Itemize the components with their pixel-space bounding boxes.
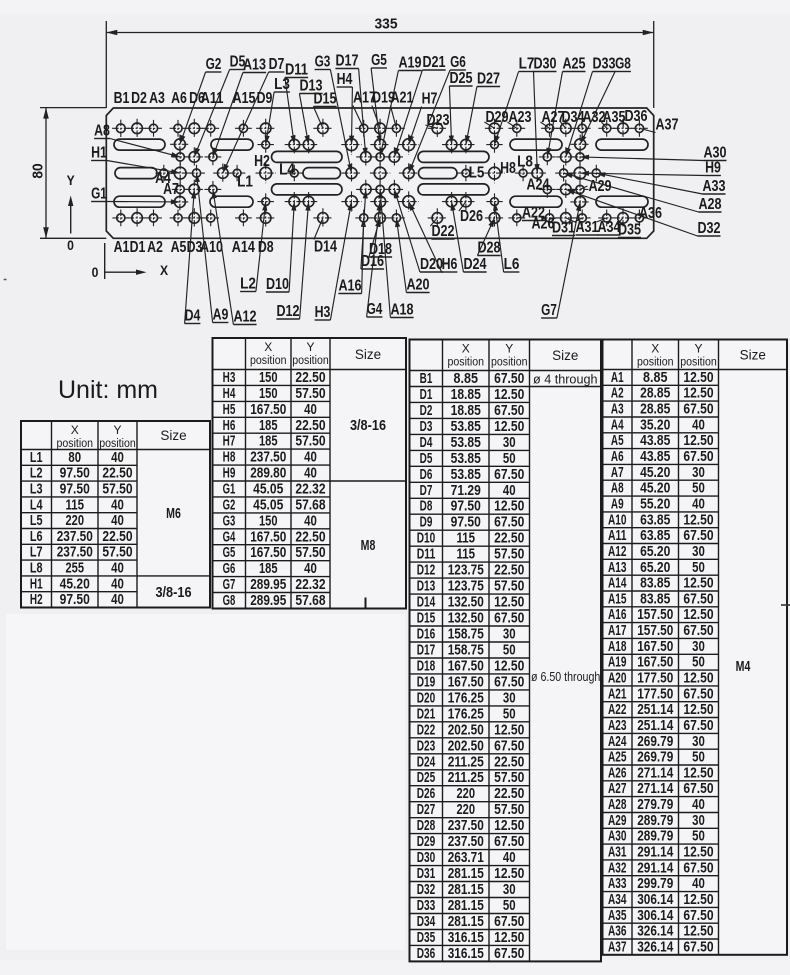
svg-text:D9: D9 <box>257 90 273 107</box>
svg-text:D33: D33 <box>417 898 436 914</box>
svg-text:50: 50 <box>503 706 516 722</box>
svg-text:220: 220 <box>66 513 85 529</box>
svg-text:Y: Y <box>694 342 702 356</box>
svg-text:40: 40 <box>503 850 516 866</box>
svg-text:A10: A10 <box>608 512 627 528</box>
svg-text:167.50: 167.50 <box>250 545 286 561</box>
svg-text:A33: A33 <box>608 876 627 892</box>
svg-text:12.50: 12.50 <box>683 576 713 592</box>
svg-text:40: 40 <box>111 513 124 529</box>
svg-text:A13: A13 <box>243 57 266 74</box>
svg-text:53.85: 53.85 <box>451 419 481 435</box>
svg-text:167.50: 167.50 <box>637 639 673 655</box>
svg-text:A9: A9 <box>611 497 624 513</box>
svg-text:83.85: 83.85 <box>640 576 670 592</box>
svg-text:L3: L3 <box>274 76 290 93</box>
svg-text:12.50: 12.50 <box>683 433 713 449</box>
svg-text:167.50: 167.50 <box>448 674 484 690</box>
svg-text:211.25: 211.25 <box>448 770 484 786</box>
svg-text:67.50: 67.50 <box>683 686 713 702</box>
svg-text:30: 30 <box>692 813 705 829</box>
svg-text:A34: A34 <box>597 219 620 236</box>
svg-text:63.85: 63.85 <box>640 528 670 544</box>
svg-text:A8: A8 <box>611 481 624 497</box>
svg-text:67.50: 67.50 <box>683 908 713 924</box>
svg-text:H1: H1 <box>30 576 43 592</box>
svg-text:12.50: 12.50 <box>683 924 713 940</box>
svg-text:D4: D4 <box>420 435 433 451</box>
svg-text:Y: Y <box>113 423 121 437</box>
svg-text:Size: Size <box>355 347 381 362</box>
svg-text:12.50: 12.50 <box>683 845 713 861</box>
svg-text:45.05: 45.05 <box>253 497 283 513</box>
svg-text:A34: A34 <box>608 892 627 908</box>
svg-text:50: 50 <box>503 898 516 914</box>
svg-text:115: 115 <box>457 547 476 563</box>
svg-text:A2: A2 <box>147 239 163 256</box>
svg-text:289.95: 289.95 <box>250 593 286 609</box>
svg-text:67.50: 67.50 <box>494 403 524 419</box>
svg-text:12.50: 12.50 <box>683 607 713 623</box>
svg-text:G8: G8 <box>223 593 236 609</box>
svg-text:50: 50 <box>692 481 705 497</box>
svg-text:30: 30 <box>692 465 705 481</box>
svg-text:158.75: 158.75 <box>448 643 484 659</box>
svg-text:L7: L7 <box>30 545 43 561</box>
svg-text:D31: D31 <box>417 866 436 882</box>
svg-text:G5: G5 <box>371 52 387 69</box>
svg-text:289.79: 289.79 <box>637 829 673 845</box>
svg-text:12.50: 12.50 <box>494 722 524 738</box>
svg-text:D23: D23 <box>417 738 436 754</box>
svg-text:123.75: 123.75 <box>448 563 484 579</box>
svg-text:X: X <box>264 340 272 354</box>
svg-text:position: position <box>250 355 287 367</box>
svg-text:0: 0 <box>67 238 74 253</box>
svg-text:12.50: 12.50 <box>683 370 713 386</box>
svg-text:D7: D7 <box>269 56 285 73</box>
svg-text:A8: A8 <box>94 123 110 140</box>
svg-text:A3: A3 <box>611 402 624 418</box>
svg-text:D36: D36 <box>417 946 436 962</box>
svg-text:position: position <box>292 355 329 367</box>
svg-text:D15: D15 <box>313 91 336 108</box>
svg-text:299.79: 299.79 <box>637 876 673 892</box>
svg-text:D2: D2 <box>420 403 433 419</box>
svg-text:12.50: 12.50 <box>494 866 524 882</box>
svg-text:150: 150 <box>259 370 278 386</box>
svg-text:237.50: 237.50 <box>57 529 93 545</box>
svg-text:D36: D36 <box>624 108 647 125</box>
svg-text:67.50: 67.50 <box>494 674 524 690</box>
svg-text:22.32: 22.32 <box>295 577 325 593</box>
svg-text:A25: A25 <box>562 56 585 73</box>
svg-text:53.85: 53.85 <box>451 467 481 483</box>
svg-text:316.15: 316.15 <box>448 930 484 946</box>
svg-text:L2: L2 <box>30 466 43 482</box>
svg-text:40: 40 <box>111 576 124 592</box>
svg-text:D32: D32 <box>417 882 436 898</box>
svg-text:30: 30 <box>503 882 516 898</box>
svg-text:67.50: 67.50 <box>494 467 524 483</box>
svg-text:50: 50 <box>692 829 705 845</box>
svg-text:D20: D20 <box>417 690 436 706</box>
svg-text:40: 40 <box>304 402 317 418</box>
svg-text:255: 255 <box>66 561 85 577</box>
svg-text:A13: A13 <box>608 560 627 576</box>
svg-text:G3: G3 <box>223 513 236 529</box>
svg-text:237.50: 237.50 <box>57 545 93 561</box>
svg-text:B1: B1 <box>114 90 130 107</box>
svg-text:X: X <box>462 342 470 356</box>
svg-text:H5: H5 <box>223 402 236 418</box>
svg-text:A5: A5 <box>171 239 187 256</box>
svg-text:289.79: 289.79 <box>637 813 673 829</box>
svg-text:176.25: 176.25 <box>448 690 484 706</box>
svg-text:65.20: 65.20 <box>640 560 670 576</box>
svg-text:position: position <box>491 357 528 369</box>
svg-text:97.50: 97.50 <box>60 592 90 608</box>
svg-text:67.50: 67.50 <box>683 781 713 797</box>
svg-text:167.50: 167.50 <box>250 529 286 545</box>
svg-text:28.85: 28.85 <box>640 402 670 418</box>
svg-text:A22: A22 <box>608 702 627 718</box>
svg-text:D14: D14 <box>314 239 337 256</box>
svg-text:30: 30 <box>503 690 516 706</box>
svg-text:40: 40 <box>692 876 705 892</box>
svg-text:A20: A20 <box>406 277 429 294</box>
svg-text:67.50: 67.50 <box>683 718 713 734</box>
svg-text:L5: L5 <box>30 513 43 529</box>
svg-text:D10: D10 <box>266 276 289 293</box>
svg-text:A23: A23 <box>608 718 627 734</box>
svg-text:G1: G1 <box>223 482 236 498</box>
svg-text:D22: D22 <box>431 223 454 240</box>
svg-text:335: 335 <box>375 17 398 33</box>
svg-text:D12: D12 <box>276 303 299 320</box>
svg-text:177.50: 177.50 <box>637 671 673 687</box>
svg-text:80: 80 <box>31 163 47 178</box>
svg-text:35.20: 35.20 <box>640 417 670 433</box>
svg-text:50: 50 <box>503 643 516 659</box>
svg-text:H8: H8 <box>223 450 236 466</box>
svg-text:306.14: 306.14 <box>637 892 673 908</box>
svg-text:281.15: 281.15 <box>448 866 484 882</box>
svg-text:A17: A17 <box>608 623 627 639</box>
svg-text:G2: G2 <box>206 56 222 73</box>
svg-text:A21: A21 <box>608 686 627 702</box>
svg-text:306.14: 306.14 <box>637 908 673 924</box>
svg-text:50: 50 <box>692 750 705 766</box>
svg-text:0: 0 <box>92 265 99 280</box>
svg-text:57.50: 57.50 <box>494 547 524 563</box>
svg-text:D7: D7 <box>420 483 433 499</box>
svg-text:50: 50 <box>503 451 516 467</box>
svg-text:G3: G3 <box>315 54 331 71</box>
svg-text:22.50: 22.50 <box>494 531 524 547</box>
svg-text:202.50: 202.50 <box>448 738 484 754</box>
svg-text:H2: H2 <box>254 153 270 170</box>
svg-text:237.50: 237.50 <box>250 450 286 466</box>
svg-text:220: 220 <box>457 786 476 802</box>
svg-text:30: 30 <box>503 435 516 451</box>
svg-text:H4: H4 <box>223 386 236 402</box>
svg-text:43.85: 43.85 <box>640 433 670 449</box>
svg-text:G2: G2 <box>223 497 236 513</box>
svg-text:67.50: 67.50 <box>494 611 524 627</box>
svg-text:12.50: 12.50 <box>494 499 524 515</box>
svg-text:D12: D12 <box>417 563 436 579</box>
svg-text:12.50: 12.50 <box>494 658 524 674</box>
svg-text:57.68: 57.68 <box>295 497 325 513</box>
svg-text:176.25: 176.25 <box>448 706 484 722</box>
svg-text:97.50: 97.50 <box>60 466 90 482</box>
svg-text:M6: M6 <box>166 506 181 522</box>
svg-text:A23: A23 <box>508 109 531 126</box>
svg-text:D16: D16 <box>417 627 436 643</box>
svg-text:A7: A7 <box>163 181 179 198</box>
svg-text:57.68: 57.68 <box>295 593 325 609</box>
svg-text:22.50: 22.50 <box>494 754 524 770</box>
svg-text:G1: G1 <box>91 186 107 203</box>
svg-text:G5: G5 <box>223 545 236 561</box>
svg-text:22.32: 22.32 <box>295 482 325 498</box>
svg-text:G4: G4 <box>367 301 383 318</box>
svg-text:D27: D27 <box>417 802 436 818</box>
svg-text:263.71: 263.71 <box>448 850 484 866</box>
svg-text:45.05: 45.05 <box>253 482 283 498</box>
svg-text:L1: L1 <box>237 174 253 191</box>
svg-text:281.15: 281.15 <box>448 882 484 898</box>
svg-text:279.79: 279.79 <box>637 797 673 813</box>
svg-text:22.50: 22.50 <box>295 370 325 386</box>
svg-text:237.50: 237.50 <box>448 834 484 850</box>
svg-text:12.50: 12.50 <box>494 419 524 435</box>
svg-text:H7: H7 <box>422 91 438 108</box>
svg-text:D5: D5 <box>420 451 433 467</box>
svg-text:40: 40 <box>111 497 124 513</box>
svg-text:A1: A1 <box>611 370 624 386</box>
svg-text:D13: D13 <box>417 579 436 595</box>
svg-text:H9: H9 <box>705 160 721 177</box>
svg-text:67.50: 67.50 <box>494 946 524 962</box>
svg-text:H3: H3 <box>315 304 331 321</box>
svg-text:40: 40 <box>304 513 317 529</box>
svg-text:D24: D24 <box>417 754 436 770</box>
svg-text:A24: A24 <box>608 734 627 750</box>
svg-text:50: 50 <box>692 655 705 671</box>
svg-text:A31: A31 <box>575 219 598 236</box>
svg-text:97.50: 97.50 <box>451 515 481 531</box>
svg-text:Y: Y <box>306 340 314 354</box>
svg-text:H6: H6 <box>442 256 458 273</box>
svg-text:Size: Size <box>552 348 578 363</box>
svg-text:67.50: 67.50 <box>494 515 524 531</box>
svg-text:position: position <box>637 357 674 369</box>
svg-text:ø 6.50 through: ø 6.50 through <box>531 669 600 684</box>
svg-text:M8: M8 <box>361 538 376 554</box>
svg-text:316.15: 316.15 <box>448 946 484 962</box>
svg-text:12.50: 12.50 <box>494 818 524 834</box>
svg-text:A11: A11 <box>200 90 223 107</box>
svg-text:A24: A24 <box>526 177 549 194</box>
svg-text:291.14: 291.14 <box>637 845 673 861</box>
svg-text:G6: G6 <box>450 54 466 71</box>
svg-text:H4: H4 <box>337 71 353 88</box>
svg-text:12.50: 12.50 <box>683 765 713 781</box>
svg-text:269.79: 269.79 <box>637 734 673 750</box>
svg-text:40: 40 <box>692 417 705 433</box>
svg-text:G8: G8 <box>615 56 631 73</box>
svg-text:57.50: 57.50 <box>295 545 325 561</box>
svg-text:67.50: 67.50 <box>683 402 713 418</box>
svg-text:3/8-16: 3/8-16 <box>350 418 386 434</box>
svg-text:position: position <box>57 438 94 450</box>
svg-text:Size: Size <box>740 348 766 363</box>
svg-text:H1: H1 <box>91 145 107 162</box>
svg-text:185: 185 <box>259 561 278 577</box>
svg-text:D1: D1 <box>420 387 433 403</box>
svg-text:A27: A27 <box>608 781 627 797</box>
svg-text:30: 30 <box>503 627 516 643</box>
svg-text:281.15: 281.15 <box>448 898 484 914</box>
svg-text:M4: M4 <box>736 659 751 675</box>
svg-text:326.14: 326.14 <box>637 939 673 955</box>
svg-text:158.75: 158.75 <box>448 627 484 643</box>
svg-text:D28: D28 <box>417 818 436 834</box>
svg-text:A12: A12 <box>608 544 627 560</box>
svg-text:167.50: 167.50 <box>448 658 484 674</box>
svg-text:8.85: 8.85 <box>454 371 478 387</box>
svg-text:53.85: 53.85 <box>451 435 481 451</box>
svg-text:269.79: 269.79 <box>637 750 673 766</box>
svg-text:G6: G6 <box>223 561 236 577</box>
svg-text:123.75: 123.75 <box>448 579 484 595</box>
svg-text:G7: G7 <box>541 302 557 319</box>
svg-text:251.14: 251.14 <box>637 718 673 734</box>
svg-text:A4: A4 <box>611 417 624 433</box>
svg-text:L4: L4 <box>30 497 43 513</box>
svg-text:A36: A36 <box>639 205 662 222</box>
svg-text:45.20: 45.20 <box>640 481 670 497</box>
svg-text:A35: A35 <box>602 109 625 126</box>
svg-text:D4: D4 <box>185 308 201 325</box>
svg-text:289.95: 289.95 <box>250 577 286 593</box>
svg-text:57.50: 57.50 <box>494 770 524 786</box>
svg-text:A18: A18 <box>390 302 413 319</box>
svg-text:150: 150 <box>259 513 278 529</box>
svg-text:40: 40 <box>304 561 317 577</box>
svg-text:D30: D30 <box>533 56 556 73</box>
svg-text:D32: D32 <box>697 220 720 237</box>
svg-text:A16: A16 <box>338 278 361 295</box>
svg-text:67.50: 67.50 <box>494 738 524 754</box>
svg-text:D29: D29 <box>417 834 436 850</box>
svg-text:53.85: 53.85 <box>451 451 481 467</box>
svg-text:D14: D14 <box>417 595 436 611</box>
svg-text:A31: A31 <box>608 845 627 861</box>
svg-text:D18: D18 <box>417 658 436 674</box>
svg-text:H9: H9 <box>223 466 236 482</box>
svg-text:D2: D2 <box>131 90 147 107</box>
svg-text:211.25: 211.25 <box>448 754 484 770</box>
svg-text:67.50: 67.50 <box>683 939 713 955</box>
svg-text:A9: A9 <box>213 307 229 324</box>
svg-text:L6: L6 <box>30 529 43 545</box>
svg-text:57.50: 57.50 <box>102 482 132 498</box>
svg-text:D25: D25 <box>417 770 436 786</box>
svg-text:A25: A25 <box>608 750 627 766</box>
svg-text:177.50: 177.50 <box>637 686 673 702</box>
svg-text:A30: A30 <box>608 829 627 845</box>
svg-text:A20: A20 <box>608 671 627 687</box>
svg-text:D30: D30 <box>417 850 436 866</box>
svg-text:A19: A19 <box>608 655 627 671</box>
svg-text:D1: D1 <box>130 239 146 256</box>
svg-text:57.50: 57.50 <box>494 579 524 595</box>
svg-text:18.85: 18.85 <box>451 387 481 403</box>
svg-text:G4: G4 <box>223 529 236 545</box>
svg-text:57.50: 57.50 <box>102 545 132 561</box>
svg-text:271.14: 271.14 <box>637 765 673 781</box>
svg-text:D15: D15 <box>417 611 436 627</box>
svg-text:281.15: 281.15 <box>448 914 484 930</box>
svg-text:12.50: 12.50 <box>683 671 713 687</box>
svg-text:40: 40 <box>111 450 124 466</box>
svg-text:D3: D3 <box>420 419 433 435</box>
svg-text:291.14: 291.14 <box>637 860 673 876</box>
svg-text:A32: A32 <box>608 860 627 876</box>
svg-text:115: 115 <box>457 531 476 547</box>
svg-text:18.85: 18.85 <box>451 403 481 419</box>
svg-text:D34: D34 <box>417 914 436 930</box>
svg-text:67.50: 67.50 <box>683 591 713 607</box>
svg-text:271.14: 271.14 <box>637 781 673 797</box>
svg-text:22.50: 22.50 <box>102 466 132 482</box>
svg-text:220: 220 <box>457 802 476 818</box>
svg-text:8.85: 8.85 <box>643 370 667 386</box>
svg-text:D11: D11 <box>417 547 436 563</box>
svg-text:A5: A5 <box>611 433 624 449</box>
svg-text:A2: A2 <box>611 386 624 402</box>
svg-text:12.50: 12.50 <box>494 387 524 403</box>
svg-text:67.50: 67.50 <box>683 623 713 639</box>
svg-text:L1: L1 <box>30 450 43 466</box>
svg-text:80: 80 <box>68 450 81 466</box>
svg-text:167.50: 167.50 <box>637 655 673 671</box>
svg-text:45.20: 45.20 <box>640 465 670 481</box>
svg-text:150: 150 <box>259 386 278 402</box>
svg-text:185: 185 <box>259 434 278 450</box>
svg-text:67.50: 67.50 <box>683 449 713 465</box>
svg-text:67.50: 67.50 <box>683 528 713 544</box>
svg-text:A33: A33 <box>702 178 725 195</box>
svg-text:237.50: 237.50 <box>448 818 484 834</box>
svg-text:D26: D26 <box>460 208 483 225</box>
svg-text:28.85: 28.85 <box>640 386 670 402</box>
svg-text:50: 50 <box>692 560 705 576</box>
svg-text:D21: D21 <box>417 706 436 722</box>
svg-text:40: 40 <box>111 561 124 577</box>
svg-text:B1: B1 <box>420 371 433 387</box>
svg-text:22.50: 22.50 <box>295 418 325 434</box>
svg-text:position: position <box>680 357 717 369</box>
svg-text:A26: A26 <box>608 765 627 781</box>
svg-text:65.20: 65.20 <box>640 544 670 560</box>
svg-text:22.50: 22.50 <box>494 563 524 579</box>
svg-text:97.50: 97.50 <box>451 499 481 515</box>
svg-text:H8: H8 <box>500 160 516 177</box>
